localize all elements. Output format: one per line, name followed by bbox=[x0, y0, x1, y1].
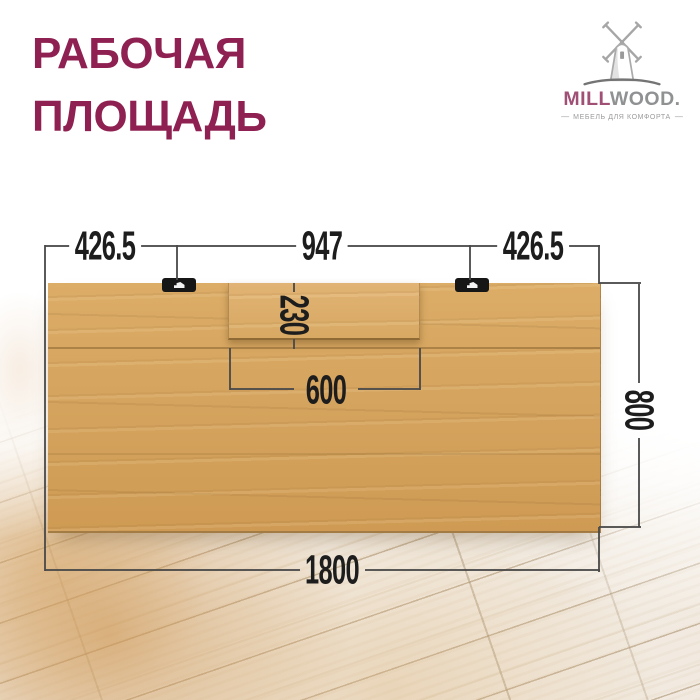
page-title-line2: ПЛОЩАДЬ bbox=[32, 85, 266, 148]
bracket-left bbox=[162, 278, 196, 292]
tray-width-line-right bbox=[419, 348, 421, 390]
dim-label-top-left: 426.5 bbox=[69, 223, 141, 270]
page-title-line1: РАБОЧАЯ bbox=[32, 22, 266, 85]
height-dim-tick-top bbox=[599, 282, 641, 284]
dim-label-total-width: 1800 bbox=[305, 547, 359, 594]
dimension-line-bottom-right-segment bbox=[365, 569, 600, 571]
dim-label-tray-depth: 230 bbox=[271, 295, 318, 336]
brand-tagline: МЕБЕЛЬ ДЛЯ КОМФОРТА bbox=[573, 114, 671, 121]
brand-tagline-row: — МЕБЕЛЬ ДЛЯ КОМФОРТА — bbox=[561, 113, 683, 121]
tray-width-line-left bbox=[229, 348, 231, 390]
windmill-icon bbox=[583, 16, 661, 90]
dimension-tick-right-bracket bbox=[469, 245, 471, 280]
height-dim-line-upper bbox=[638, 284, 640, 383]
dim-label-top-right: 426.5 bbox=[497, 223, 569, 270]
tabletop-board-seam-faint bbox=[48, 453, 600, 455]
page-title: РАБОЧАЯ ПЛОЩАДЬ bbox=[32, 22, 266, 148]
brand-wordmark-mill: MILL bbox=[563, 88, 609, 110]
dimension-line-left bbox=[44, 245, 46, 571]
tray-width-line-right-segment bbox=[358, 388, 420, 390]
height-dim-line-lower bbox=[638, 438, 640, 527]
dim-label-height: 800 bbox=[616, 390, 663, 431]
brand-logo: MILLWOOD. — МЕБЕЛЬ ДЛЯ КОМФОРТА — bbox=[564, 16, 680, 121]
brand-wordmark: MILLWOOD. bbox=[563, 88, 680, 111]
tabletop-board-seam bbox=[48, 347, 600, 349]
dim-label-tray-width: 600 bbox=[306, 367, 347, 414]
tray-depth-line-lower bbox=[293, 339, 295, 349]
tagline-dash-right: — bbox=[675, 113, 683, 121]
dim-label-top-center: 947 bbox=[296, 223, 348, 270]
dimension-line-right-upper bbox=[598, 245, 600, 284]
tray-width-line-left-segment bbox=[230, 388, 294, 390]
tagline-dash-left: — bbox=[561, 113, 569, 121]
dimension-tick-left-bracket bbox=[176, 245, 178, 280]
brand-wordmark-wood: WOOD. bbox=[610, 88, 681, 110]
bracket-logo-icon bbox=[174, 282, 185, 288]
bracket-right bbox=[455, 278, 489, 292]
bracket-logo-icon bbox=[467, 282, 478, 288]
height-dim-tick-bottom bbox=[599, 526, 641, 528]
product-infographic: РАБОЧАЯ ПЛОЩАДЬ MILLWOOD. — bbox=[0, 0, 700, 700]
tray-depth-line-upper bbox=[293, 283, 295, 292]
dimension-line-bottom-left-segment bbox=[45, 569, 300, 571]
dimension-line-right-lower bbox=[598, 527, 600, 572]
keyboard-tray-panel bbox=[228, 283, 420, 340]
